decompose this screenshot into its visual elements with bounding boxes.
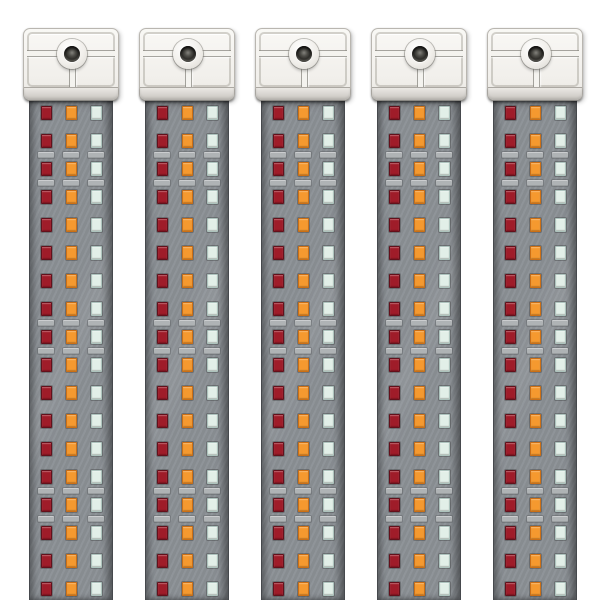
solder-pad [320,516,336,522]
led-deep-red [273,134,284,148]
led-deep-red [505,554,516,568]
screw-boss [57,39,87,69]
led-cool-white [555,498,566,512]
led-deep-red [505,526,516,540]
led-orange [414,526,425,540]
led-cool-white [91,106,102,120]
led-cool-white [207,554,218,568]
mounting-bracket [371,28,467,101]
led-cool-white [207,162,218,176]
led-deep-red [41,414,52,428]
led-deep-red [157,498,168,512]
bracket-lip [256,87,350,100]
solder-pad [295,180,311,186]
led-deep-red [41,106,52,120]
solder-pad [204,320,220,326]
led-deep-red [41,498,52,512]
led-cool-white [91,526,102,540]
led-orange [298,554,309,568]
led-orange [182,134,193,148]
led-cool-white [323,582,334,596]
led-orange [414,190,425,204]
led-orange [66,498,77,512]
led-orange [530,302,541,316]
led-orange [298,246,309,260]
solder-pad [436,516,452,522]
led-deep-red [505,442,516,456]
solder-pad [38,348,54,354]
led-deep-red [389,554,400,568]
led-deep-red [157,218,168,232]
solder-pad [179,488,195,494]
led-cool-white [207,526,218,540]
solder-pad [63,516,79,522]
solder-pad [63,180,79,186]
solder-pad [63,320,79,326]
led-cool-white [323,442,334,456]
led-orange [414,582,425,596]
led-cool-white [207,358,218,372]
solder-pad [295,488,311,494]
led-orange [182,526,193,540]
led-deep-red [389,526,400,540]
led-deep-red [157,386,168,400]
led-orange [66,274,77,288]
led-deep-red [41,386,52,400]
solder-pad [270,516,286,522]
led-orange [182,554,193,568]
led-orange [414,162,425,176]
led-orange [414,274,425,288]
led-deep-red [389,414,400,428]
led-deep-red [505,274,516,288]
solder-pad [320,180,336,186]
led-cool-white [91,582,102,596]
solder-pad [552,152,568,158]
led-deep-red [157,330,168,344]
solder-pad [38,180,54,186]
led-cool-white [91,470,102,484]
led-deep-red [41,134,52,148]
led-deep-red [505,162,516,176]
solder-pad [179,320,195,326]
led-cool-white [439,582,450,596]
led-deep-red [41,358,52,372]
solder-pad [411,320,427,326]
led-orange [414,134,425,148]
led-orange [182,470,193,484]
bracket-lip [140,87,234,100]
solder-pad [527,152,543,158]
led-deep-red [157,246,168,260]
bar-body [377,97,461,600]
solder-pad [552,488,568,494]
led-deep-red [273,330,284,344]
bar-body [493,97,577,600]
led-deep-red [41,330,52,344]
led-cool-white [439,386,450,400]
led-cool-white [207,386,218,400]
led-cool-white [439,470,450,484]
solder-pad [88,320,104,326]
led-cool-white [439,498,450,512]
led-orange [182,302,193,316]
led-cool-white [323,386,334,400]
solder-pad [436,348,452,354]
led-deep-red [157,134,168,148]
led-orange [298,190,309,204]
led-orange [530,162,541,176]
solder-pad [88,488,104,494]
led-cool-white [439,218,450,232]
bracket-lip [24,87,118,100]
solder-pad [320,488,336,494]
screw-boss [173,39,203,69]
solder-pad [88,180,104,186]
led-cool-white [555,358,566,372]
led-orange [414,554,425,568]
grow-light-bar [477,0,593,600]
led-orange [66,134,77,148]
solder-pad [386,152,402,158]
led-orange [66,470,77,484]
led-cool-white [555,246,566,260]
led-cool-white [91,358,102,372]
led-cool-white [555,554,566,568]
screw-hole [296,46,312,62]
led-deep-red [157,526,168,540]
led-deep-red [41,162,52,176]
solder-pad [38,488,54,494]
led-orange [182,414,193,428]
led-cool-white [91,190,102,204]
led-orange [530,134,541,148]
led-deep-red [157,358,168,372]
led-cool-white [207,414,218,428]
led-deep-red [273,302,284,316]
led-cool-white [91,134,102,148]
bar-body [261,97,345,600]
led-cool-white [323,526,334,540]
solder-pad [154,180,170,186]
solder-pad [320,152,336,158]
led-deep-red [157,106,168,120]
solder-pad [295,152,311,158]
screw-boss [521,39,551,69]
led-deep-red [505,358,516,372]
led-orange [182,358,193,372]
solder-pad [295,516,311,522]
led-deep-red [273,442,284,456]
solder-pad [154,320,170,326]
led-orange [66,330,77,344]
led-cool-white [207,442,218,456]
led-deep-red [273,274,284,288]
led-orange [66,442,77,456]
solder-pad [88,516,104,522]
led-deep-red [389,106,400,120]
led-cool-white [323,470,334,484]
led-orange [530,274,541,288]
led-cool-white [207,218,218,232]
led-deep-red [273,498,284,512]
led-deep-red [389,134,400,148]
led-deep-red [505,302,516,316]
solder-pad [411,348,427,354]
led-cool-white [91,302,102,316]
led-orange [530,554,541,568]
led-cool-white [439,554,450,568]
solder-pad [386,488,402,494]
solder-pad [270,152,286,158]
led-deep-red [273,554,284,568]
led-deep-red [505,218,516,232]
led-orange [530,190,541,204]
bar-body [29,97,113,600]
led-deep-red [505,414,516,428]
led-cool-white [91,218,102,232]
led-cool-white [439,302,450,316]
led-deep-red [389,274,400,288]
led-orange [182,386,193,400]
led-deep-red [389,190,400,204]
led-deep-red [157,274,168,288]
led-cool-white [439,442,450,456]
solder-pad [436,152,452,158]
led-orange [66,414,77,428]
led-orange [530,414,541,428]
led-orange [66,554,77,568]
solder-pad [179,348,195,354]
led-orange [298,526,309,540]
solder-pad [154,516,170,522]
led-orange [530,470,541,484]
led-deep-red [41,554,52,568]
solder-pad [386,516,402,522]
solder-pad [295,320,311,326]
led-cool-white [439,134,450,148]
led-cool-white [323,330,334,344]
led-cool-white [439,162,450,176]
solder-pad [88,152,104,158]
led-orange [530,442,541,456]
led-cool-white [439,526,450,540]
led-orange [66,190,77,204]
solder-pad [88,348,104,354]
led-orange [414,218,425,232]
led-deep-red [273,414,284,428]
led-deep-red [273,246,284,260]
led-cool-white [323,358,334,372]
solder-pad [270,320,286,326]
led-orange [182,162,193,176]
solder-pad [502,348,518,354]
solder-pad [436,488,452,494]
led-deep-red [41,274,52,288]
led-orange [298,498,309,512]
solder-pad [204,152,220,158]
solder-pad [386,320,402,326]
led-orange [182,498,193,512]
led-cool-white [555,470,566,484]
solder-pad [552,320,568,326]
solder-pad [552,516,568,522]
led-cool-white [323,498,334,512]
led-cool-white [323,106,334,120]
led-deep-red [157,470,168,484]
led-orange [66,246,77,260]
led-orange [182,330,193,344]
led-orange [298,358,309,372]
solder-pad [63,152,79,158]
led-cool-white [91,554,102,568]
led-orange [414,358,425,372]
led-deep-red [389,470,400,484]
led-deep-red [157,414,168,428]
led-cool-white [555,526,566,540]
led-cool-white [207,274,218,288]
led-cool-white [555,106,566,120]
led-orange [298,218,309,232]
solder-pad [527,488,543,494]
screw-hole [528,46,544,62]
led-cool-white [207,134,218,148]
led-orange [530,358,541,372]
led-deep-red [273,526,284,540]
solder-pad [411,152,427,158]
solder-pad [179,152,195,158]
solder-pad [270,180,286,186]
led-cool-white [91,498,102,512]
solder-pad [179,180,195,186]
led-orange [298,442,309,456]
led-orange [66,302,77,316]
led-orange [530,582,541,596]
led-orange [182,106,193,120]
solder-pad [411,488,427,494]
led-orange [298,134,309,148]
screw-boss [405,39,435,69]
solder-pad [320,320,336,326]
led-cool-white [207,246,218,260]
led-orange [182,218,193,232]
led-deep-red [389,330,400,344]
solder-pad [38,320,54,326]
led-deep-red [157,162,168,176]
led-orange [298,274,309,288]
led-orange [414,330,425,344]
solder-pad [154,488,170,494]
led-cool-white [555,162,566,176]
led-orange [182,246,193,260]
led-orange [298,106,309,120]
led-orange [414,470,425,484]
solder-pad [320,348,336,354]
led-cool-white [555,442,566,456]
solder-pad [204,488,220,494]
led-deep-red [273,470,284,484]
led-deep-red [505,330,516,344]
solder-pad [270,348,286,354]
solder-pad [527,348,543,354]
solder-pad [270,488,286,494]
led-deep-red [41,246,52,260]
led-cool-white [91,274,102,288]
led-orange [414,442,425,456]
led-orange [298,162,309,176]
led-orange [298,330,309,344]
led-orange [182,442,193,456]
led-cool-white [91,330,102,344]
led-cool-white [323,554,334,568]
led-cool-white [91,442,102,456]
solder-pad [502,488,518,494]
solder-pad [63,488,79,494]
led-orange [298,414,309,428]
led-orange [182,582,193,596]
led-deep-red [389,582,400,596]
led-deep-red [389,358,400,372]
led-deep-red [389,442,400,456]
led-cool-white [555,134,566,148]
led-orange [530,498,541,512]
led-deep-red [157,442,168,456]
led-orange [530,218,541,232]
led-cool-white [323,414,334,428]
led-cool-white [439,330,450,344]
bar-body [145,97,229,600]
led-orange [66,106,77,120]
led-deep-red [389,218,400,232]
led-deep-red [389,386,400,400]
led-deep-red [505,246,516,260]
led-orange [414,414,425,428]
solder-pad [527,180,543,186]
bracket-lip [372,87,466,100]
solder-pad [436,180,452,186]
screw-hole [412,46,428,62]
solder-pad [502,320,518,326]
led-deep-red [157,190,168,204]
solder-pad [295,348,311,354]
led-deep-red [505,134,516,148]
screw-boss [289,39,319,69]
led-cool-white [207,330,218,344]
led-cool-white [439,106,450,120]
led-cool-white [91,246,102,260]
mounting-bracket [487,28,583,101]
led-orange [530,330,541,344]
mounting-bracket [23,28,119,101]
solder-pad [411,180,427,186]
grow-light-bar [13,0,129,600]
led-deep-red [41,442,52,456]
led-orange [530,526,541,540]
led-cool-white [323,274,334,288]
led-deep-red [41,582,52,596]
led-orange [414,106,425,120]
led-deep-red [157,554,168,568]
led-orange [414,498,425,512]
led-cool-white [91,414,102,428]
led-orange [298,302,309,316]
solder-pad [154,348,170,354]
led-deep-red [505,106,516,120]
mounting-bracket [255,28,351,101]
led-deep-red [505,498,516,512]
led-orange [414,386,425,400]
solder-pad [552,180,568,186]
